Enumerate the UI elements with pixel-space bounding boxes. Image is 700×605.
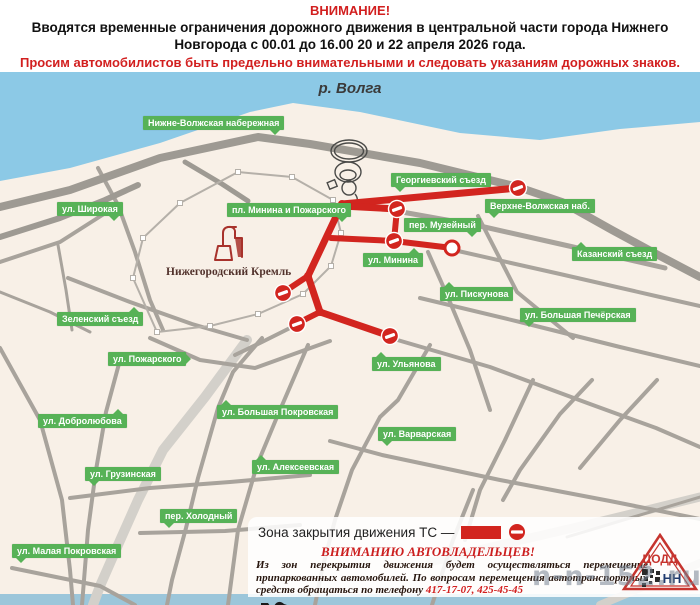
open-endpoint-marker (445, 241, 459, 255)
label-pointer (394, 186, 406, 198)
street-label: ул. Варварская (378, 427, 456, 441)
kremlin-tower-node (331, 198, 336, 203)
label-pointer (336, 216, 348, 228)
kremlin-tower-node (256, 312, 261, 317)
label-pointer (163, 522, 175, 534)
legend-row: Зона закрытия движения ТС — (258, 523, 526, 541)
label-pointer (15, 557, 27, 569)
header: ВНИМАНИЕ! Вводятся временные ограничения… (0, 0, 700, 72)
kremlin-tower-node (329, 264, 334, 269)
owners-attention-title: ВНИМАНИЮ АВТОВЛАДЕЛЬЦЕВ! (248, 544, 608, 560)
street-label: ул. Пискунова (440, 287, 513, 301)
notice-panel: Зона закрытия движения ТС — ВНИМАНИЮ АВТ… (248, 517, 700, 597)
legend-label: Зона закрытия движения ТС — (258, 525, 454, 540)
label-pointer (220, 394, 232, 406)
label-pointer (575, 236, 587, 248)
kremlin-tower-node (141, 236, 146, 241)
closed-zone-swatch (461, 526, 501, 539)
label-pointer (443, 276, 455, 288)
kremlin-tower-node (290, 175, 295, 180)
street-label: Верхне-Волжская наб. (485, 199, 595, 213)
label-pointer (108, 215, 120, 227)
label-pointer (408, 242, 420, 254)
street-label: пер. Музейный (404, 218, 481, 232)
street-label: ул. Большая Печёрская (520, 308, 636, 322)
label-pointer (255, 449, 267, 461)
street-label: ул. Малая Покровская (12, 544, 121, 558)
street-label: Нижне-Волжская набережная (143, 116, 284, 130)
river-label: р. Волга (0, 80, 700, 97)
kremlin-tower-icon (208, 224, 250, 264)
street-label: ул. Добролюбова (38, 414, 127, 428)
traffic-restriction-notice: ВНИМАНИЕ! Вводятся временные ограничения… (0, 0, 700, 605)
street-label: Казанский съезд (572, 247, 657, 261)
street-label: Зеленский съезд (57, 312, 143, 326)
label-pointer (112, 403, 124, 415)
street-label: ул. Грузинская (85, 467, 161, 481)
street-label: ул. Пожарского (108, 352, 186, 366)
kremlin-tower-node (131, 276, 136, 281)
attention-title: ВНИМАНИЕ! (0, 3, 700, 18)
no-entry-legend-icon (508, 523, 526, 541)
label-pointer (375, 346, 387, 358)
restriction-text: Вводятся временные ограничения дорожного… (6, 19, 694, 53)
kremlin-tower-node (339, 231, 344, 236)
street-label: ул. Минина (363, 253, 423, 267)
tow-truck-icon (260, 597, 296, 605)
label-pointer (381, 440, 393, 452)
street-label: ул. Широкая (57, 202, 123, 216)
kremlin-tower-node (208, 324, 213, 329)
watermark: n-n-152.ru (532, 561, 700, 592)
phone-numbers: 417-17-07, 425-45-45 (426, 584, 523, 596)
street-label: ул. Большая Покровская (217, 405, 338, 419)
street-label: пл. Минина и Пожарского (227, 203, 351, 217)
kremlin-tower-node (301, 292, 306, 297)
label-pointer (466, 231, 478, 243)
street-label: ул. Алексеевская (252, 460, 339, 474)
label-pointer (488, 212, 500, 224)
kremlin-tower-node (236, 170, 241, 175)
kremlin-tower-node (178, 201, 183, 206)
street-label: ул. Ульянова (372, 357, 441, 371)
label-pointer (269, 129, 281, 141)
kremlin-label: Нижегородский Кремль (166, 266, 291, 278)
kremlin-tower-node (155, 330, 160, 335)
label-pointer (523, 321, 535, 333)
label-pointer (128, 301, 140, 313)
drivers-warning-text: Просим автомобилистов быть предельно вни… (3, 55, 697, 70)
label-pointer (185, 353, 197, 365)
label-pointer (88, 480, 100, 492)
street-label: Георгиевский съезд (391, 173, 491, 187)
street-label: пер. Холодный (160, 509, 237, 523)
